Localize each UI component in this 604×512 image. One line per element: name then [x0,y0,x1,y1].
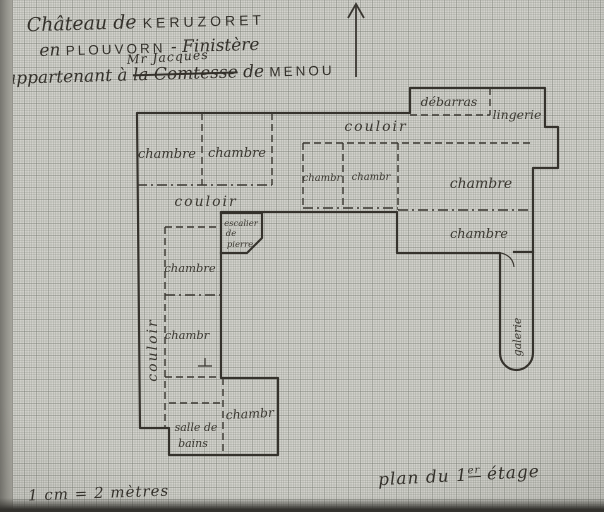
title-menou: MENOU [269,63,335,80]
room-label-couloir-mid: couloir [174,194,237,210]
room-label-chambre-mid2: chambr [352,172,392,183]
title-chateau: Château de [26,11,137,36]
photo-bottom-edge [0,498,604,512]
photo-of-floor-plan: chambre chambre couloir débarras lingeri… [0,0,604,512]
title-de: de [243,62,265,83]
room-label-salle-de-bains-2: bains [178,437,208,450]
caption-post: étage [480,462,540,485]
room-label-escalier-3: pierre [227,240,253,250]
north-arrow-icon [348,4,364,77]
room-label-couloir-top: couloir [344,119,407,135]
title-keruzoret: KERUZORET [142,12,265,31]
photo-left-edge [0,0,13,512]
room-label-escalier-2: de [226,229,236,239]
door-tick [198,358,212,366]
room-label-chambre-nw2: chambre [208,146,266,161]
room-label-chambre-w-lower: chambr [165,328,211,342]
room-label-salle-de-bains-1: salle de [175,421,218,434]
title-en: en [39,40,61,61]
room-label-galerie: galerie [511,317,524,356]
room-label-couloir-west: couloir [145,318,161,381]
room-label-chambre-e-upper: chambre [450,176,512,192]
room-label-chambre-s: chambr [225,405,275,423]
struck-text: la Comtesse [133,62,238,85]
room-label-escalier-1: escalier [224,219,259,229]
caption-ordinal: er [467,465,480,478]
title-struck-comtesse: la ComtesseMr Jacques [133,62,238,85]
title-appartenant: appartenant à [6,65,128,88]
room-label-chambre-nw1: chambre [138,147,196,162]
room-label-lingerie: lingerie [493,107,542,122]
room-label-chambre-w-upper: chambre [164,261,215,275]
room-label-debarras: débarras [421,94,478,109]
room-label-chambre-e-lower: chambre [450,227,508,242]
gallery-door-arc [501,253,514,267]
room-label-chambre-mid1: chambr [303,173,343,184]
